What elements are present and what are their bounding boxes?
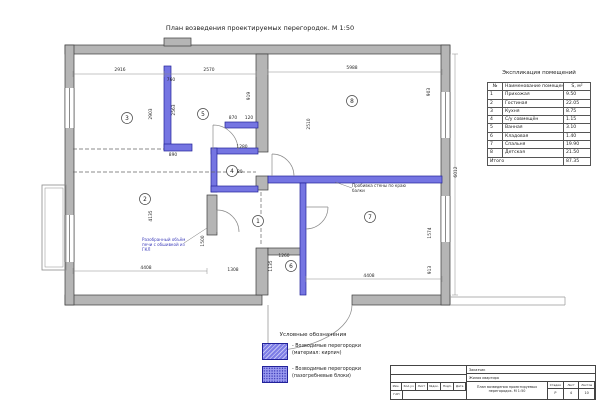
table-cell: 1.15 [564, 116, 591, 124]
total-label: Итого [488, 157, 564, 165]
table-cell: Спальня [503, 140, 564, 148]
dimension-label: 903 [426, 88, 432, 97]
table-cell: 3 [488, 107, 503, 115]
room-number-5: 5 [198, 109, 209, 120]
svg-text:4: 4 [230, 169, 234, 175]
stair-landing-wall [450, 297, 565, 305]
outer-walls [65, 38, 450, 305]
table-cell: 2 [488, 99, 503, 107]
table-cell: Гостиная [503, 99, 564, 107]
title-block-revisions: Изм.Кол.учЛист№док.Подп.Дата ГАП [391, 366, 467, 399]
legend-swatch-blocks [262, 366, 288, 383]
bearing-wall [256, 54, 268, 152]
table-row: 8Детская21.50 [488, 149, 591, 157]
table-cell: 19.90 [564, 140, 591, 148]
room-number-4: 4 [227, 166, 238, 177]
table-cell: 8 [488, 149, 503, 157]
svg-text:3: 3 [125, 116, 129, 122]
table-row: 5Ванная3.10 [488, 124, 591, 132]
table-cell: 8.75 [564, 107, 591, 115]
sheets-label: Листов [579, 382, 595, 388]
table-cell: Ванная [503, 124, 564, 132]
legend-label: - Возводимые перегородки(пазогребневые б… [292, 367, 361, 380]
dimension-label: 919 [246, 92, 252, 101]
revision-header-cell: Дата [454, 382, 466, 390]
table-row: 6Кладовая1.40 [488, 132, 591, 140]
room-number-2: 2 [140, 194, 151, 205]
table-cell: 3.10 [564, 124, 591, 132]
dimension-label: 870 [229, 115, 238, 121]
room-number-1: 1 [253, 216, 264, 227]
room-number-6: 6 [286, 261, 297, 272]
room-number-3: 3 [122, 113, 133, 124]
column-header: S, м² [564, 83, 591, 91]
svg-text:8: 8 [350, 99, 354, 105]
table-cell: 6 [488, 132, 503, 140]
table-cell: 22.05 [564, 99, 591, 107]
stage-value: Р [548, 389, 564, 399]
floor-plan: 2916257059887602563290391989012808701201… [0, 0, 600, 400]
room-number-8: 8 [347, 96, 358, 107]
dimension-label: 1308 [227, 267, 238, 273]
table-cell: 1 [488, 91, 503, 99]
table-cell: 5 [488, 124, 503, 132]
explication-block: Экспликация помещений №Наименование поме… [487, 70, 591, 166]
room-number-7: 7 [365, 212, 376, 223]
explication-total-row: Итого 87.35 [488, 157, 591, 165]
door-arcs [213, 125, 352, 351]
table-cell: С/у совмещён [503, 116, 564, 124]
table-cell: 21.50 [564, 149, 591, 157]
sheets-value: 10 [579, 389, 595, 399]
table-cell: Прихожая [503, 91, 564, 99]
balcony [42, 185, 66, 270]
dimension-label: 4135 [148, 210, 154, 221]
dimension-label: 1574 [427, 227, 433, 238]
vent-shaft [164, 38, 191, 46]
table-row: 2Гостиная22.05 [488, 99, 591, 107]
dimension-label: 1135 [268, 260, 274, 271]
dimension-label: 2510 [306, 118, 312, 129]
revision-header-cell: Подп. [441, 382, 454, 390]
svg-text:7: 7 [368, 215, 372, 221]
customer-cell: Заказчик [467, 366, 595, 374]
svg-text:1: 1 [256, 219, 260, 225]
table-cell: 7 [488, 140, 503, 148]
drawing-sheet: План возведения проектируемых перегородо… [0, 0, 600, 400]
dimension-label: 2916 [114, 67, 125, 73]
table-row: 7Спальня19.90 [488, 140, 591, 148]
sheet-value: 4 [564, 389, 580, 399]
dimension-label: 2563 [171, 104, 177, 115]
bathroom-door-arc [213, 125, 238, 150]
table-cell: 4 [488, 116, 503, 124]
revision-header-cell: №док. [428, 382, 442, 390]
revision-header-cell: Лист [416, 382, 428, 390]
room7-door-arc [306, 207, 328, 229]
table-row: 3Кухня8.75 [488, 107, 591, 115]
dimension-label: 5988 [346, 65, 357, 71]
title-block: Изм.Кол.учЛист№док.Подп.Дата ГАП Заказчи… [390, 365, 596, 400]
table-row: 4С/у совмещён1.15 [488, 116, 591, 124]
legend-item: - Возводимые перегородки(материал: кирпи… [262, 343, 422, 361]
dimension-label: 120 [245, 115, 254, 121]
explication-table: №Наименование помещенияS, м² 1Прихожая9.… [487, 82, 591, 166]
column-header: Наименование помещения [503, 83, 564, 91]
legend-swatch-brick [262, 343, 288, 360]
legend-label: - Возводимые перегородки(материал: кирпи… [292, 344, 361, 357]
revision-headers: Изм.Кол.учЛист№док.Подп.Дата [391, 382, 466, 390]
revision-header-cell: Кол.уч [402, 382, 416, 390]
dimension-label: 1280 [236, 144, 247, 150]
table-cell: Детская [503, 149, 564, 157]
column-header: № [488, 83, 503, 91]
svg-text:5: 5 [201, 112, 205, 118]
table-row: 1Прихожая9.50 [488, 91, 591, 99]
plan-note: Разобранный объёмпечи с обшивкой изГКЛ [142, 237, 185, 252]
hall-door-arc [217, 210, 239, 232]
dashed-walls [73, 149, 261, 246]
dimension-label: 1500 [200, 235, 206, 246]
table-cell: 9.50 [564, 91, 591, 99]
explication-title: Экспликация помещений [487, 70, 591, 76]
revision-header-cell: Изм. [391, 382, 402, 390]
sheet-title-cell: План возведения проектируемых перегородо… [467, 382, 547, 399]
sheet-label: Лист [564, 382, 580, 388]
dimension-label: 760 [167, 77, 176, 83]
bearing-wall [256, 248, 268, 295]
dimension-label: 1260 [278, 253, 289, 259]
table-cell: Кладовая [503, 132, 564, 140]
dimension-label: 913 [427, 266, 433, 275]
dimension-label: 4408 [140, 265, 151, 271]
total-value: 87.35 [564, 157, 591, 165]
title-block-main: Заказчик Жилая квартира План возведения … [467, 366, 595, 399]
svg-text:6: 6 [289, 264, 293, 270]
room8-door-arc [272, 154, 294, 176]
plan-note: Пробивка стены по краюбалки [352, 183, 406, 193]
legend-title: Условные обозначения [258, 332, 368, 338]
dimension-label: 6012 [453, 166, 459, 177]
dimension-label: 890 [169, 152, 178, 158]
object-cell: Жилая квартира [467, 374, 595, 382]
stage-label: Стадия [548, 382, 564, 388]
stage-sheet-cols: Стадия Лист Листов Р 4 10 [547, 382, 595, 399]
gap-cell: ГАП [391, 390, 403, 399]
bearing-wall-stub [207, 195, 217, 235]
table-cell: 1.40 [564, 132, 591, 140]
dimension-label: 2903 [148, 108, 154, 119]
explication-header-row: №Наименование помещенияS, м² [488, 83, 591, 91]
new-partitions [164, 66, 442, 295]
dimension-label: 2570 [203, 67, 214, 73]
dimension-label: 4408 [363, 273, 374, 279]
svg-text:2: 2 [143, 197, 147, 203]
table-cell: Кухня [503, 107, 564, 115]
